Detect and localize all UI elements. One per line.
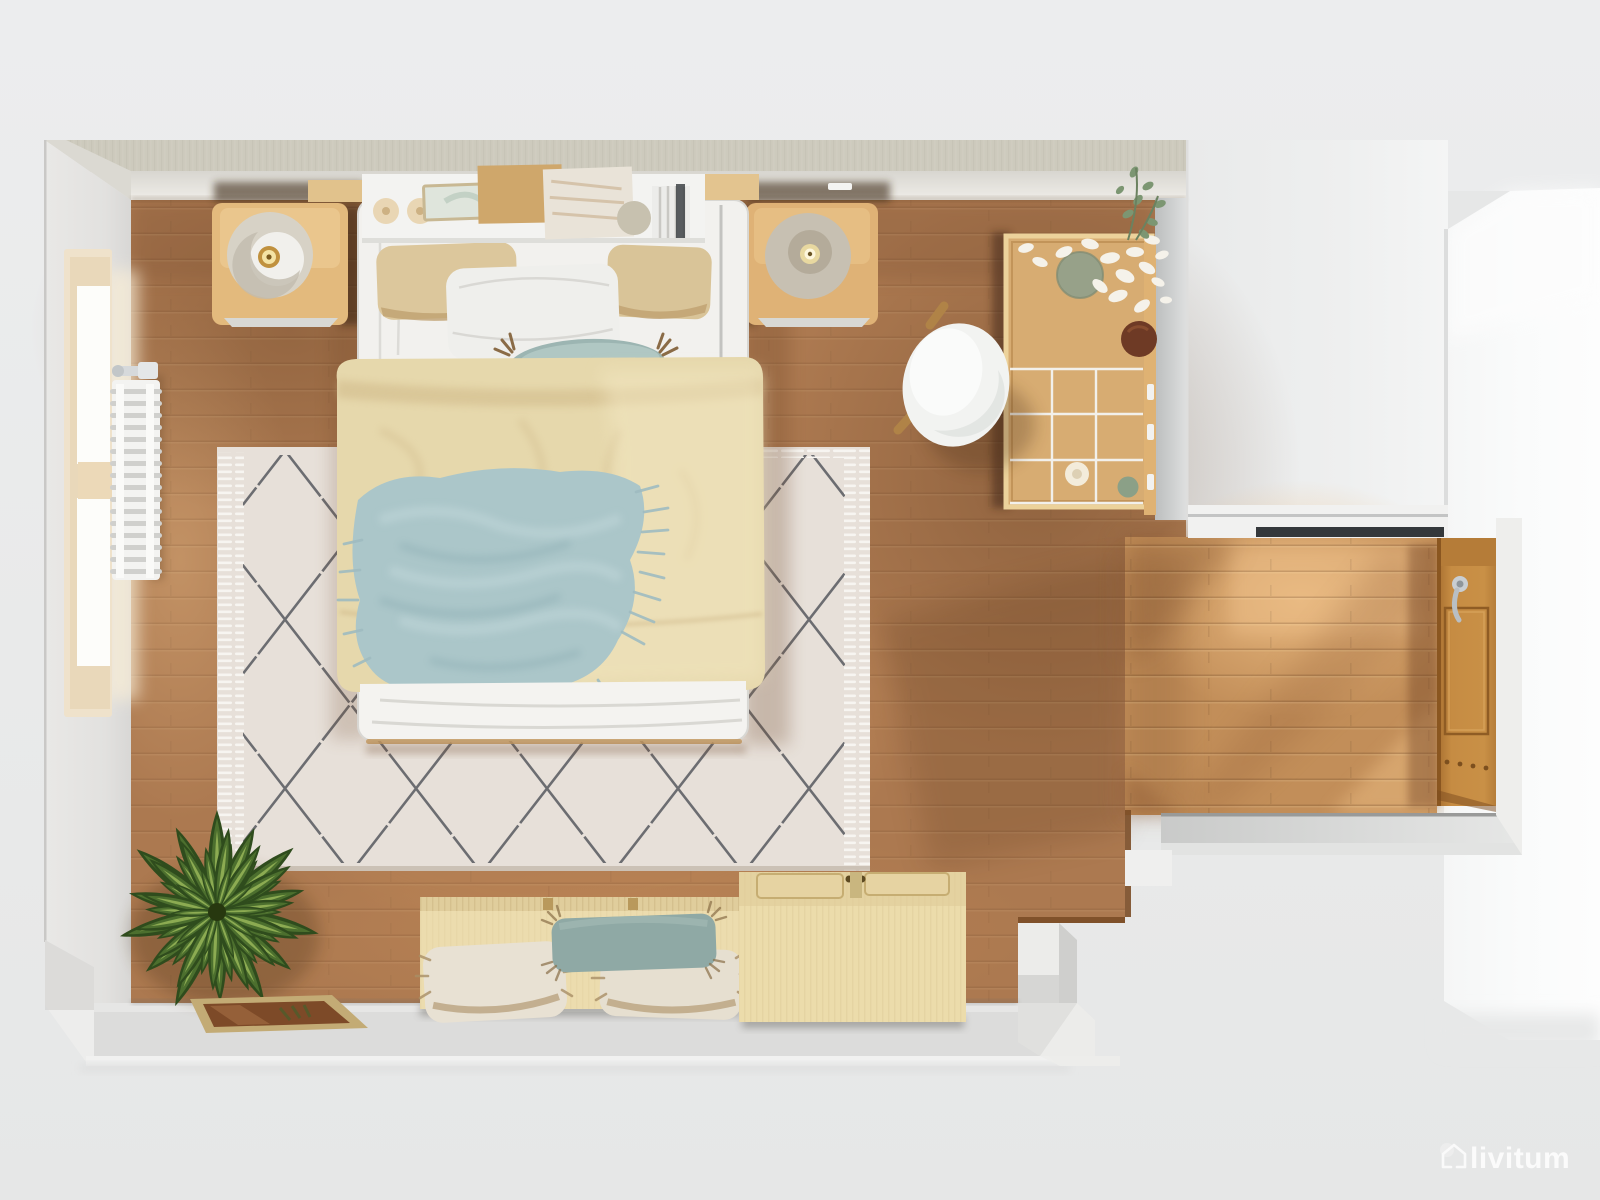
svg-text:livitum: livitum — [1470, 1142, 1570, 1175]
